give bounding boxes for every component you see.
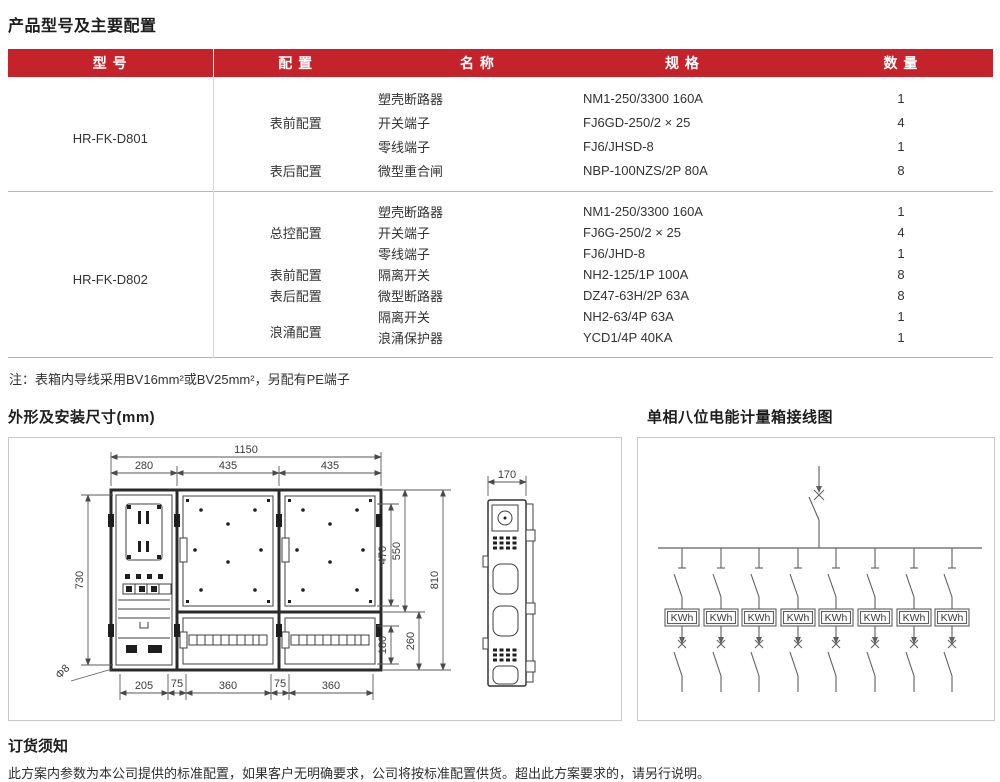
config-cell: 浪涌配置	[213, 306, 378, 358]
dimension-drawing-panel: 1150 280 435 435 730 470 550 810 180 260…	[8, 437, 622, 721]
model-cell: HR-FK-D801	[8, 77, 213, 192]
col-header-spec: 规 格	[583, 49, 809, 77]
dim-label: 470	[377, 546, 389, 564]
datasheet-page: 产品型号及主要配置 型 号 配 置 名 称 规 格 数 量 HR-FK-D801…	[0, 0, 1000, 782]
meter-label: KWh	[903, 612, 926, 624]
col-header-model: 型 号	[8, 49, 213, 77]
wiring-section: 单相八位电能计量箱接线图	[637, 406, 995, 721]
meter-branch: KWh	[897, 548, 931, 692]
dim-label: 170	[498, 469, 516, 481]
meter-label: KWh	[864, 612, 887, 624]
dimension-section: 外形及安装尺寸(mm)	[8, 406, 622, 721]
wiring-section-title: 单相八位电能计量箱接线图	[647, 406, 995, 427]
dim-label: 75	[171, 678, 183, 690]
meter-branch: KWh	[781, 548, 815, 692]
meter-branch: KWh	[935, 548, 969, 692]
table-row: HR-FK-D801 表前配置 塑壳断路器 NM1-250/3300 160A …	[8, 77, 993, 110]
dim-label: 180	[377, 636, 389, 654]
meter-label: KWh	[748, 612, 771, 624]
dim-label: 360	[322, 680, 340, 692]
lower-sections: 外形及安装尺寸(mm)	[8, 406, 993, 721]
config-cell: 表前配置	[213, 264, 378, 285]
ordering-text: 此方案内参数为本公司提供的标准配置，如果客户无明确要求，公司将按标准配置供货。超…	[8, 763, 993, 782]
meter-label: KWh	[710, 612, 733, 624]
meter-branch: KWh	[819, 548, 853, 692]
table-footnote: 注：表箱内导线采用BV16mm²或BV25mm²，另配有PE端子	[9, 369, 993, 388]
meter-label: KWh	[787, 612, 810, 624]
ordering-title: 订货须知	[8, 735, 993, 756]
dim-label: 1150	[234, 444, 258, 456]
meter-branch: KWh	[665, 548, 699, 692]
meter-branch: KWh	[858, 548, 892, 692]
meter-branch: KWh	[704, 548, 738, 692]
meter-label: KWh	[671, 612, 694, 624]
meter-branch: KWh	[742, 548, 776, 692]
model-cell: HR-FK-D802	[8, 192, 213, 358]
dimension-section-title: 外形及安装尺寸(mm)	[8, 406, 622, 427]
dim-label: 280	[135, 460, 153, 472]
dim-label: 730	[74, 571, 86, 589]
dim-label: 435	[321, 460, 339, 472]
dim-label: 810	[429, 571, 441, 589]
meter-label: KWh	[941, 612, 964, 624]
col-header-name: 名 称	[378, 49, 583, 77]
config-table: 型 号 配 置 名 称 规 格 数 量 HR-FK-D801 表前配置 塑壳断路…	[8, 49, 993, 358]
config-cell: 表前配置	[213, 77, 378, 158]
hole-diameter-label: Φ8	[53, 662, 72, 681]
config-cell: 表后配置	[213, 285, 378, 306]
wiring-diagram-panel: KWh KWh	[637, 437, 995, 721]
wiring-diagram: KWh KWh	[638, 438, 994, 720]
col-header-qty: 数 量	[809, 49, 993, 77]
side-view: 170	[483, 469, 535, 686]
table-header-row: 型 号 配 置 名 称 规 格 数 量	[8, 49, 993, 77]
page-title: 产品型号及主要配置	[8, 12, 993, 36]
col-header-config: 配 置	[213, 49, 378, 77]
dim-label: 360	[219, 680, 237, 692]
main-switch	[809, 466, 824, 548]
meter-label: KWh	[825, 612, 848, 624]
dim-label: 260	[405, 632, 417, 650]
dim-label: 435	[219, 460, 237, 472]
dimension-drawing: 1150 280 435 435 730 470 550 810 180 260…	[9, 438, 621, 720]
config-cell: 表后配置	[213, 158, 378, 192]
dim-label: 75	[274, 678, 286, 690]
dim-label: 550	[391, 542, 403, 560]
config-cell: 总控配置	[213, 192, 378, 265]
front-view	[108, 490, 382, 670]
table-row: HR-FK-D802 总控配置 塑壳断路器 NM1-250/3300 160A …	[8, 192, 993, 223]
dim-label: 205	[135, 680, 153, 692]
